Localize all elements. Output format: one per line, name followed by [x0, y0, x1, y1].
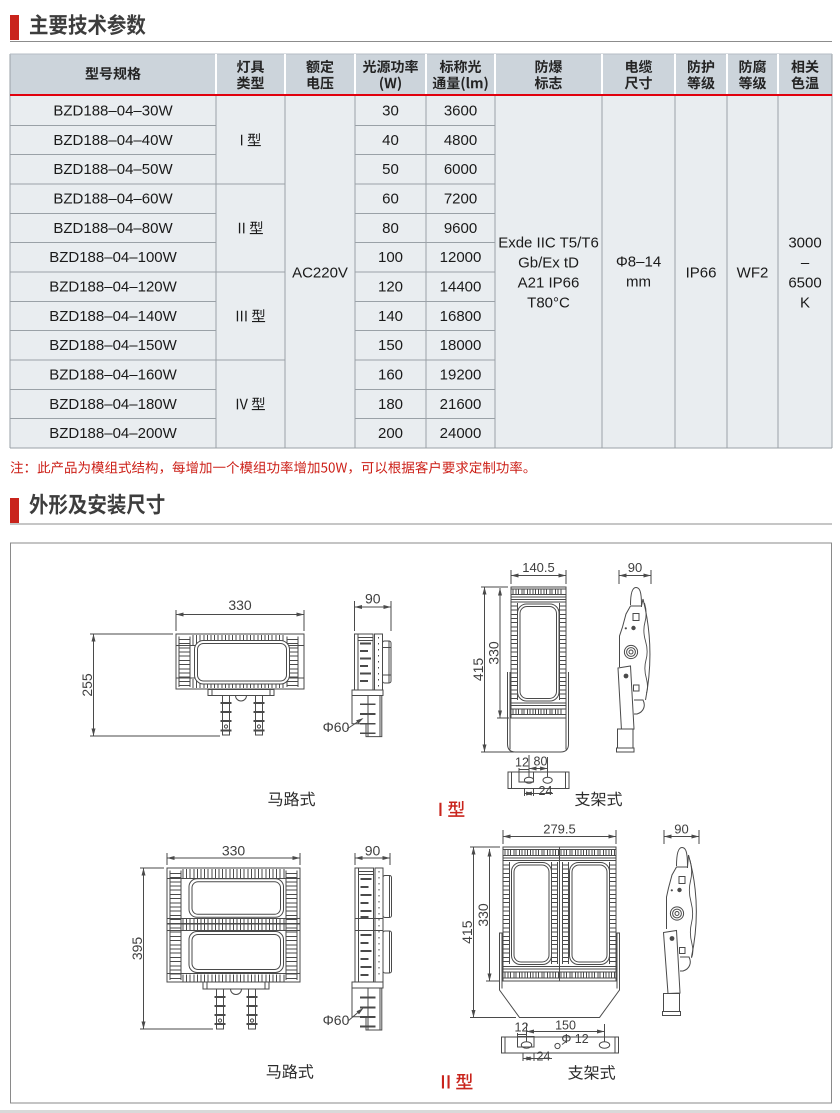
- svg-text:120: 120: [378, 279, 403, 296]
- svg-text:BZD188–04–50W: BZD188–04–50W: [53, 161, 173, 178]
- svg-text:180: 180: [378, 396, 403, 413]
- svg-text:150: 150: [378, 337, 403, 354]
- svg-text:140: 140: [378, 308, 403, 325]
- svg-text:330: 330: [486, 641, 502, 665]
- svg-text:WF2: WF2: [737, 264, 769, 281]
- svg-text:Exde IIC T5/T6: Exde IIC T5/T6: [498, 234, 599, 251]
- svg-text:BZD188–04–140W: BZD188–04–140W: [49, 308, 177, 325]
- svg-text:415: 415: [470, 658, 486, 682]
- svg-text:K: K: [800, 294, 810, 311]
- svg-text:255: 255: [79, 673, 95, 697]
- svg-text:40: 40: [382, 132, 399, 149]
- svg-text:80: 80: [534, 755, 548, 769]
- svg-text:BZD188–04–30W: BZD188–04–30W: [53, 103, 173, 120]
- svg-text:Φ60: Φ60: [323, 719, 350, 735]
- svg-text:7200: 7200: [444, 191, 477, 208]
- svg-text:330: 330: [222, 842, 246, 858]
- svg-text:330: 330: [228, 597, 252, 613]
- svg-text:30: 30: [382, 103, 399, 120]
- svg-text:BZD188–04–100W: BZD188–04–100W: [49, 249, 177, 266]
- svg-text:4800: 4800: [444, 132, 477, 149]
- svg-text:24000: 24000: [440, 425, 482, 442]
- svg-text:BZD188–04–120W: BZD188–04–120W: [49, 279, 177, 296]
- svg-text:Gb/Ex tD: Gb/Ex tD: [518, 254, 579, 271]
- svg-text:12000: 12000: [440, 249, 482, 266]
- svg-text:140.5: 140.5: [522, 560, 555, 575]
- svg-text:AC220V: AC220V: [292, 264, 348, 281]
- svg-text:BZD188–04–180W: BZD188–04–180W: [49, 396, 177, 413]
- svg-text:18000: 18000: [440, 337, 482, 354]
- svg-text:60: 60: [382, 191, 399, 208]
- svg-text:9600: 9600: [444, 220, 477, 237]
- svg-text:A21 IP66: A21 IP66: [518, 274, 580, 291]
- svg-text:BZD188–04–160W: BZD188–04–160W: [49, 367, 177, 384]
- svg-text:BZD188–04–200W: BZD188–04–200W: [49, 425, 177, 442]
- svg-text:24: 24: [537, 1050, 551, 1064]
- svg-text:6500: 6500: [788, 274, 821, 291]
- svg-text:21600: 21600: [440, 396, 482, 413]
- svg-text:Φ 12: Φ 12: [561, 1032, 588, 1046]
- svg-text:24: 24: [539, 784, 553, 798]
- svg-text:6000: 6000: [444, 161, 477, 178]
- svg-text:BZD188–04–150W: BZD188–04–150W: [49, 337, 177, 354]
- svg-text:BZD188–04–80W: BZD188–04–80W: [53, 220, 173, 237]
- svg-text:19200: 19200: [440, 367, 482, 384]
- svg-text:395: 395: [129, 937, 145, 961]
- svg-text:Φ60: Φ60: [323, 1012, 350, 1028]
- svg-text:14400: 14400: [440, 279, 482, 296]
- svg-text:330: 330: [475, 903, 491, 927]
- svg-text:12: 12: [515, 756, 529, 770]
- svg-text:BZD188–04–40W: BZD188–04–40W: [53, 132, 173, 149]
- svg-text:90: 90: [628, 560, 642, 575]
- svg-text:T80°C: T80°C: [527, 294, 570, 311]
- svg-text:Φ8–14: Φ8–14: [616, 253, 661, 270]
- svg-text:90: 90: [365, 842, 381, 858]
- svg-text:415: 415: [459, 920, 475, 944]
- svg-text:150: 150: [555, 1019, 576, 1033]
- svg-text:200: 200: [378, 425, 403, 442]
- svg-text:279.5: 279.5: [543, 821, 576, 836]
- svg-text:50: 50: [382, 161, 399, 178]
- svg-text:90: 90: [365, 591, 381, 607]
- svg-text:160: 160: [378, 367, 403, 384]
- svg-text:mm: mm: [626, 273, 651, 290]
- svg-text:IP66: IP66: [686, 264, 717, 281]
- svg-text:16800: 16800: [440, 308, 482, 325]
- svg-text:3000: 3000: [788, 234, 821, 251]
- svg-text:3600: 3600: [444, 103, 477, 120]
- svg-text:–: –: [801, 254, 810, 271]
- svg-text:90: 90: [674, 821, 688, 836]
- svg-text:80: 80: [382, 220, 399, 237]
- svg-text:100: 100: [378, 249, 403, 266]
- svg-text:BZD188–04–60W: BZD188–04–60W: [53, 191, 173, 208]
